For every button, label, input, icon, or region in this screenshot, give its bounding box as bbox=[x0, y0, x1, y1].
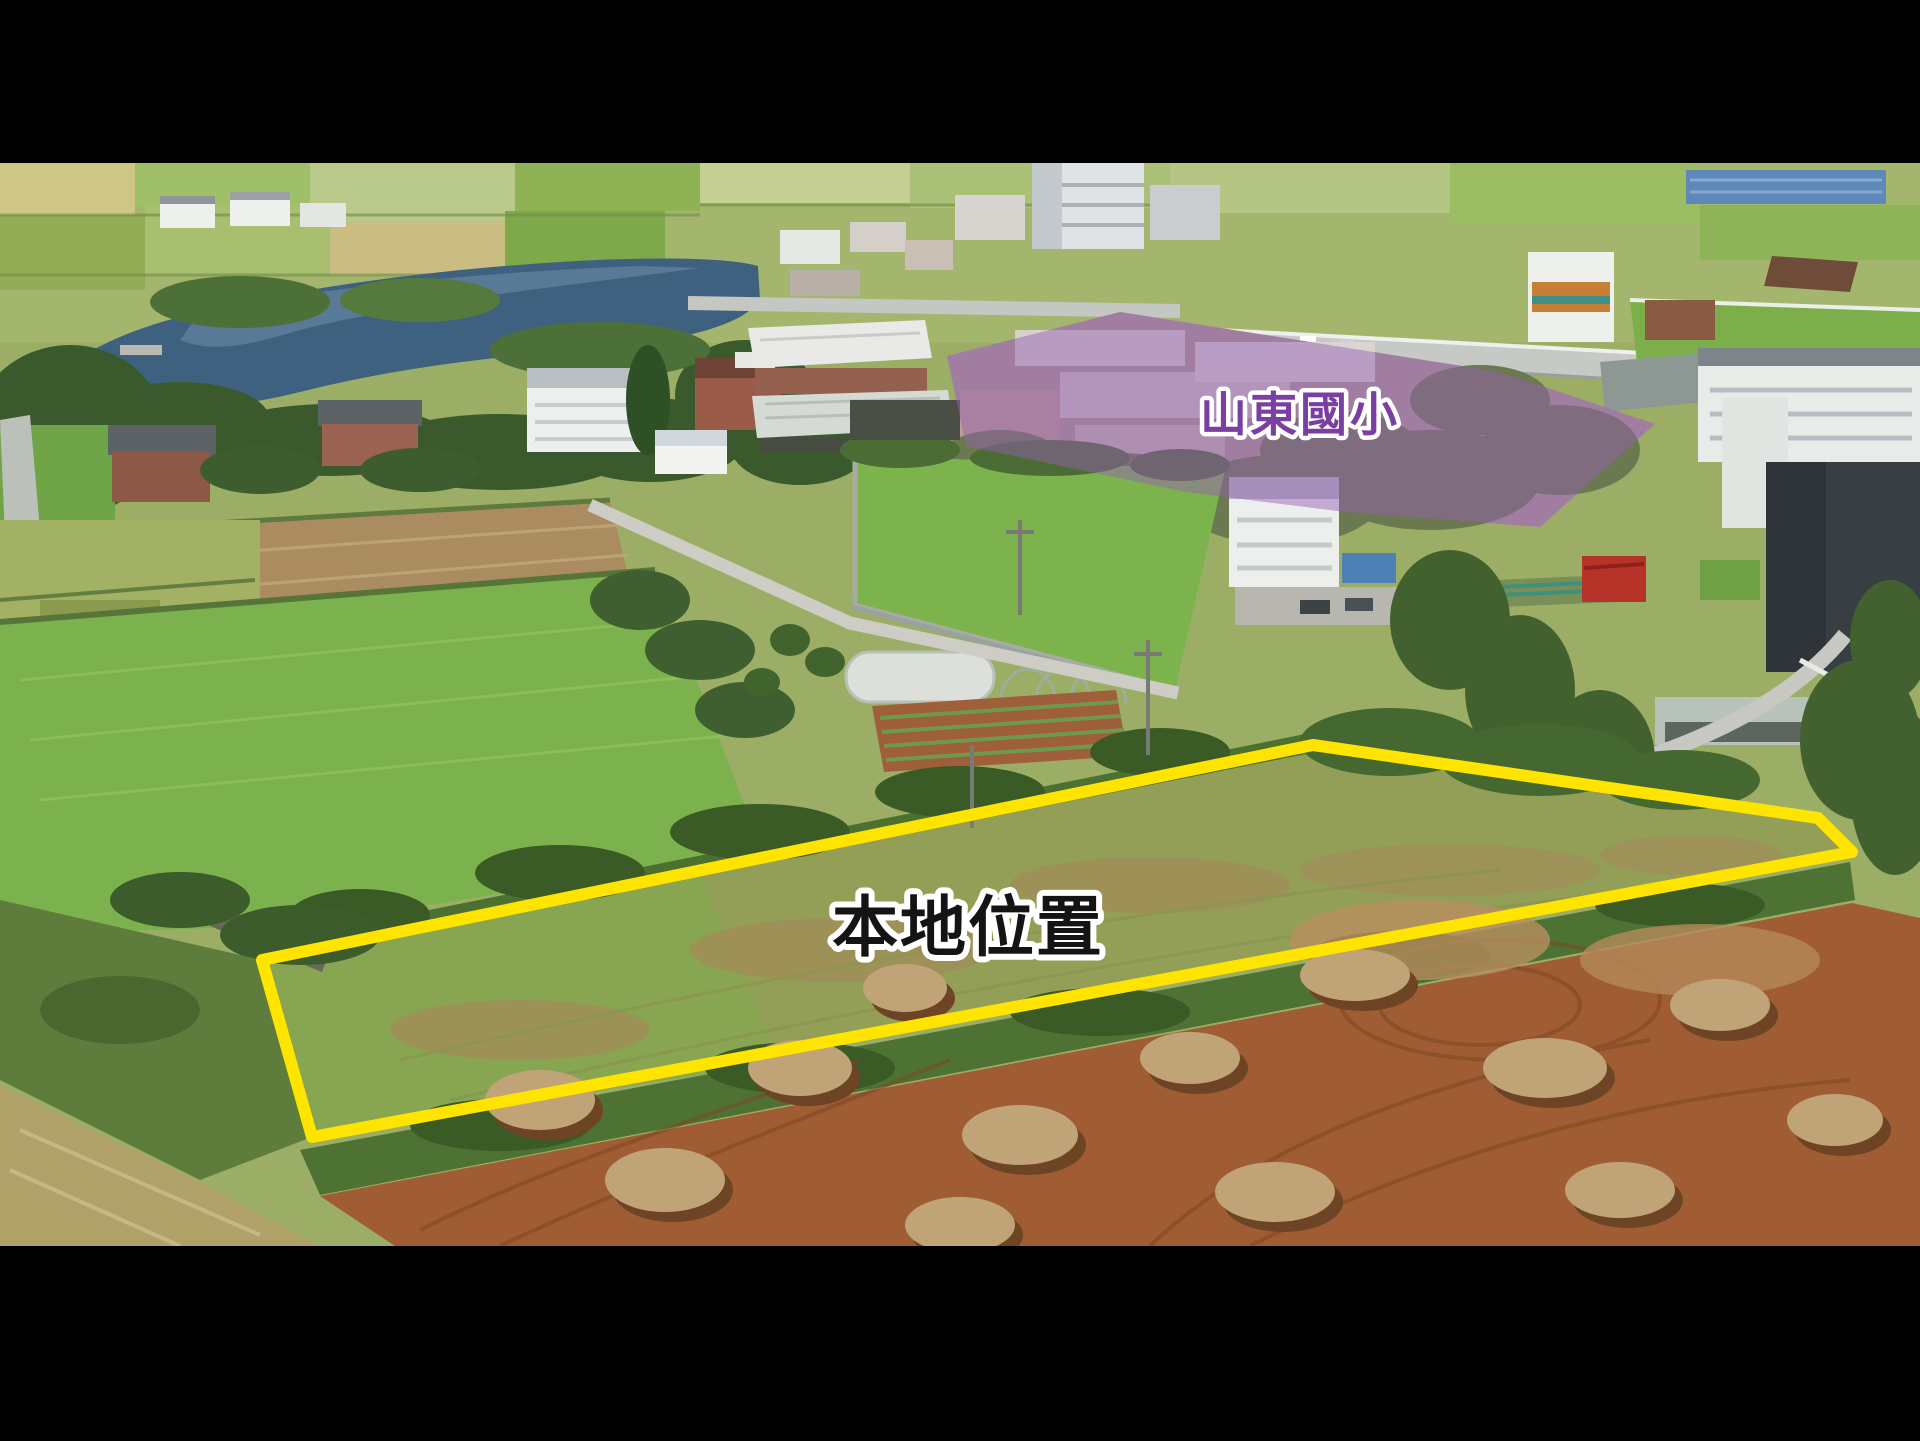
dark-roof-shed bbox=[850, 400, 960, 440]
photo-scene: 山東國小 本地位置 bbox=[0, 163, 1920, 1263]
blue-tarp bbox=[1342, 553, 1396, 583]
brown-roof-house bbox=[1764, 256, 1858, 292]
school-label: 山東國小 bbox=[1200, 388, 1400, 441]
site-label: 本地位置 bbox=[832, 890, 1104, 964]
greenhouse-tunnel bbox=[846, 652, 994, 702]
screenshot-canvas: 山東國小 本地位置 bbox=[0, 0, 1920, 1441]
aerial-photo: 山東國小 本地位置 bbox=[0, 0, 1920, 1441]
cottage bbox=[655, 446, 727, 474]
lake-bridge bbox=[120, 345, 162, 355]
